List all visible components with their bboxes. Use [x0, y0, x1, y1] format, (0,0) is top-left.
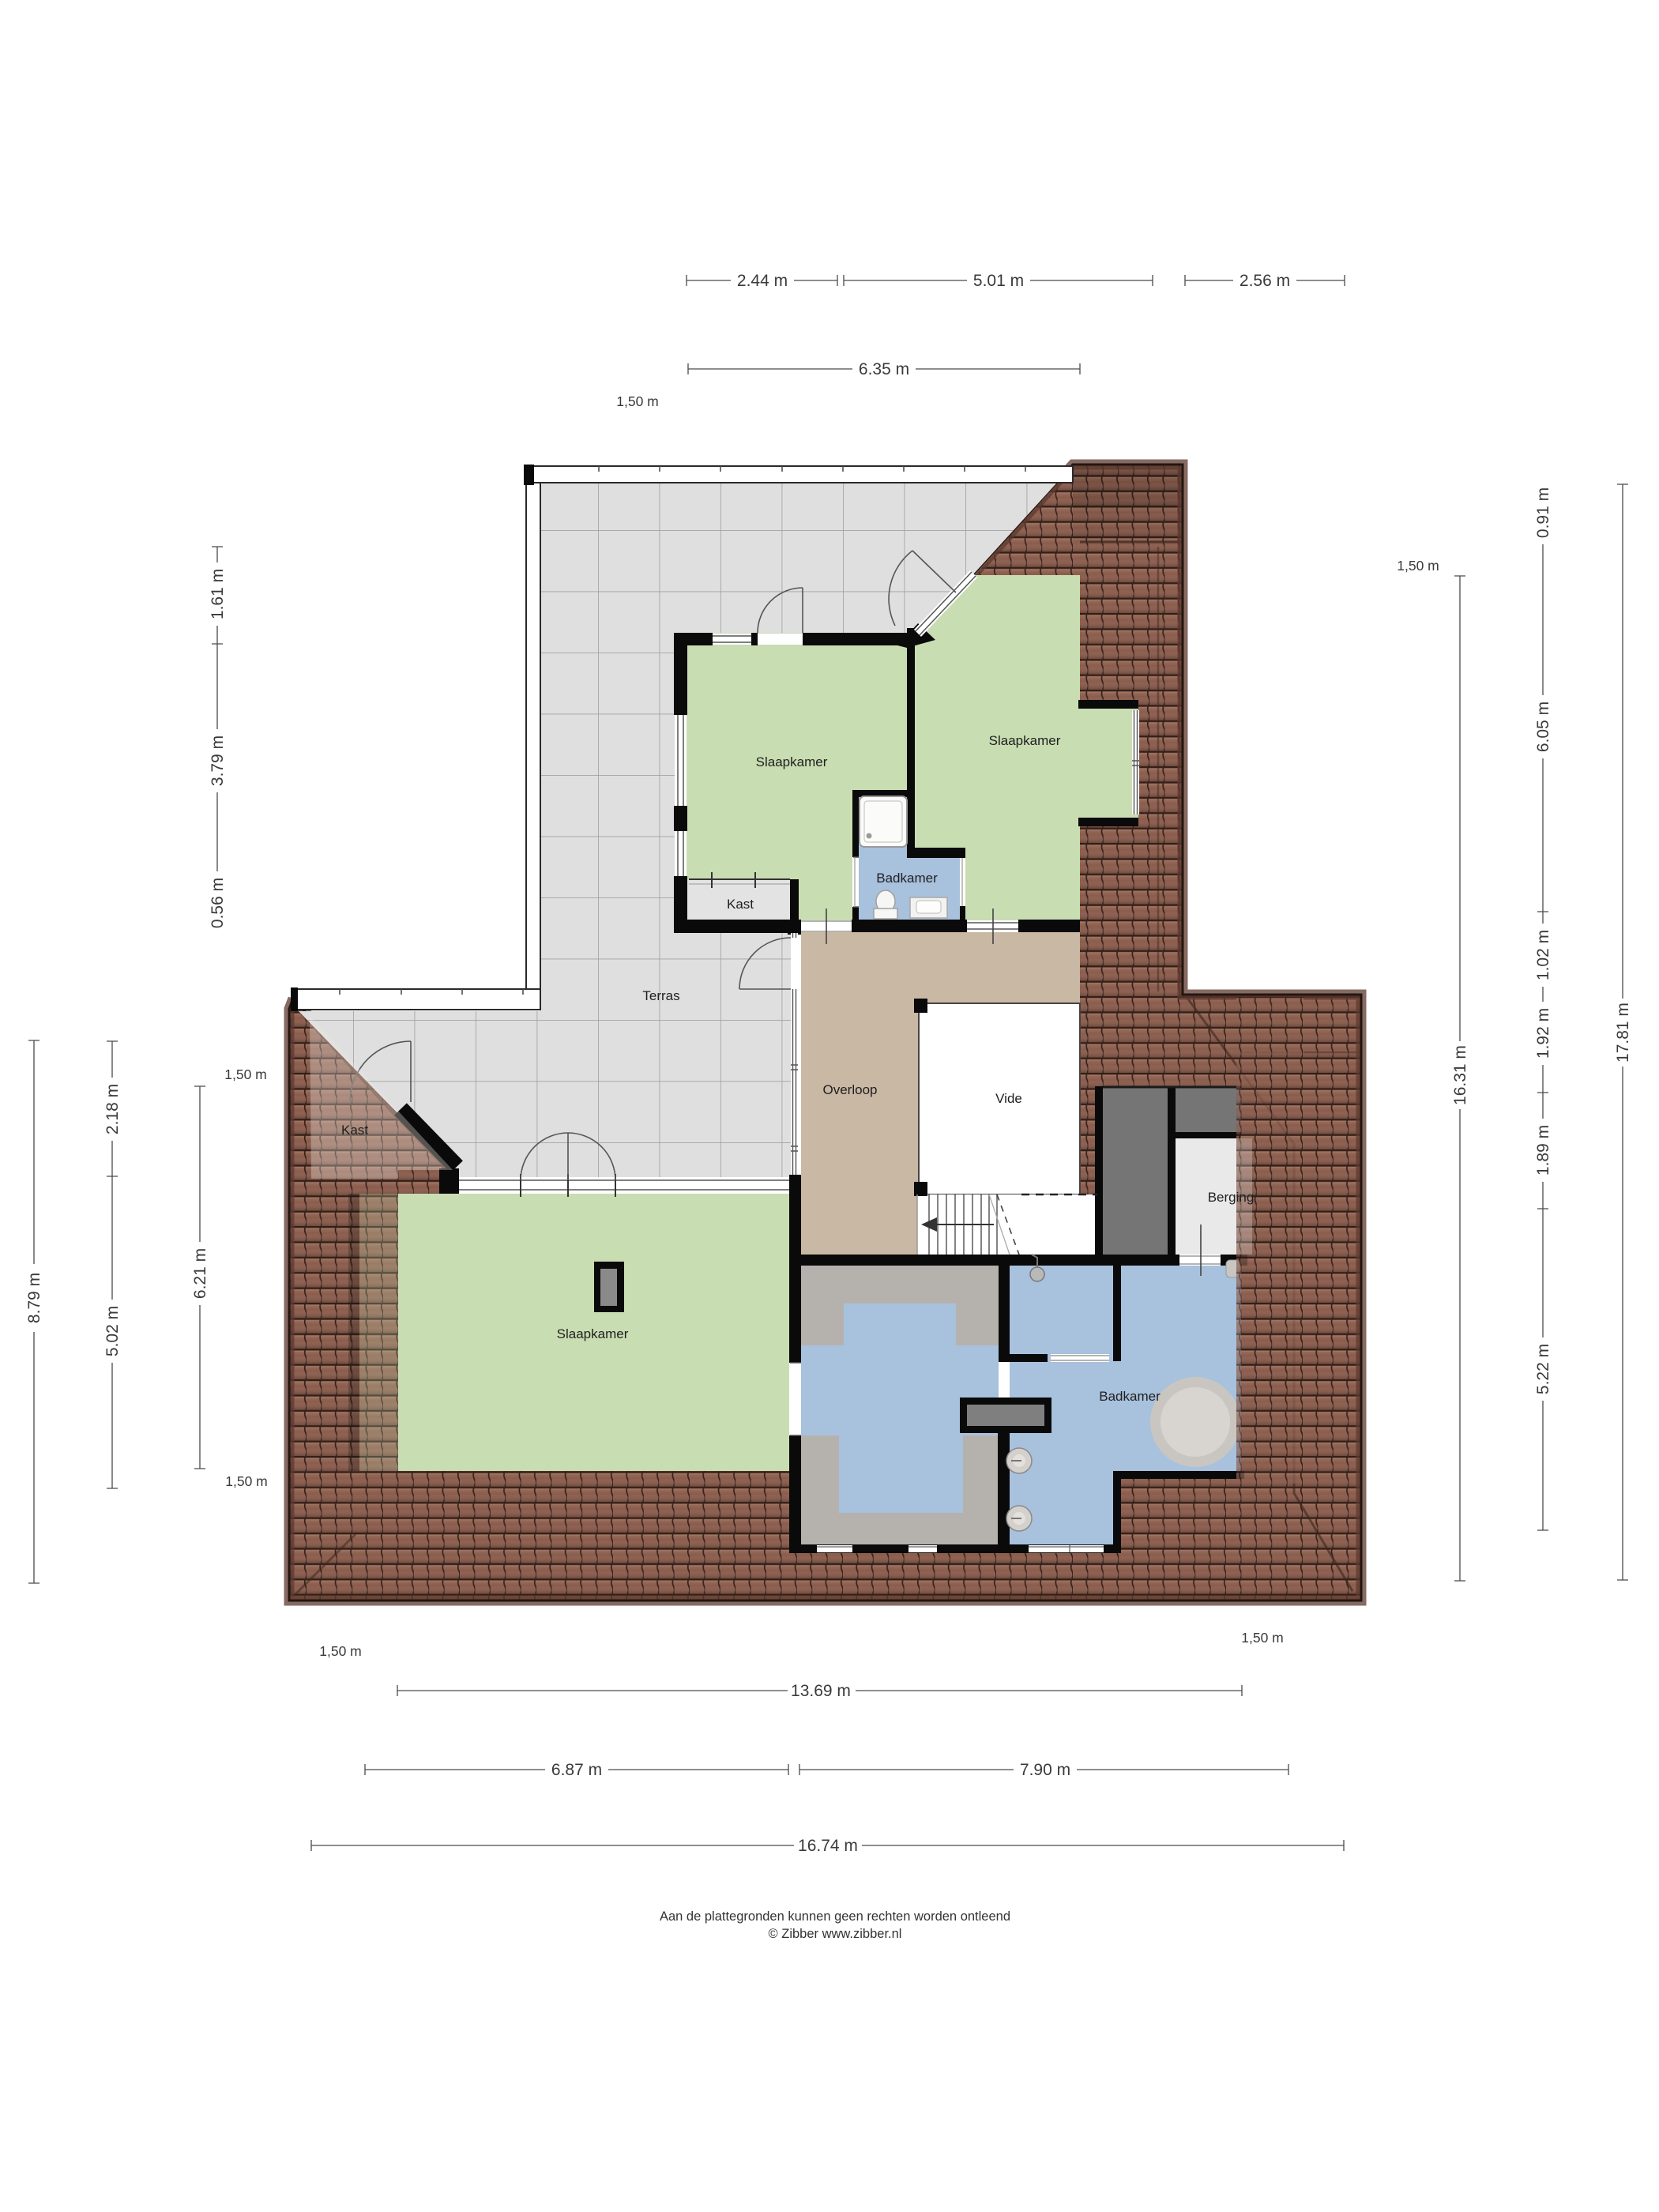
svg-text:1,50 m: 1,50 m	[1241, 1630, 1284, 1646]
svg-text:Badkamer: Badkamer	[876, 871, 938, 886]
svg-text:1.92 m: 1.92 m	[1534, 1008, 1552, 1059]
svg-text:Badkamer: Badkamer	[1099, 1389, 1161, 1404]
svg-text:7.90 m: 7.90 m	[1020, 1761, 1070, 1779]
svg-text:Terras: Terras	[642, 988, 679, 1003]
svg-text:5.22 m: 5.22 m	[1534, 1344, 1552, 1394]
svg-text:16.74 m: 16.74 m	[798, 1837, 858, 1855]
svg-text:16.31 m: 16.31 m	[1451, 1045, 1469, 1105]
svg-text:Aan de plattegronden kunnen ge: Aan de plattegronden kunnen geen rechten…	[660, 1909, 1010, 1924]
svg-text:1.02 m: 1.02 m	[1534, 930, 1552, 980]
svg-text:2.56 m: 2.56 m	[1240, 272, 1290, 290]
svg-text:1,50 m: 1,50 m	[616, 393, 659, 409]
svg-text:Slaapkamer: Slaapkamer	[557, 1326, 629, 1341]
svg-text:1,50 m: 1,50 m	[319, 1643, 362, 1659]
svg-text:0.56 m: 0.56 m	[209, 878, 227, 928]
svg-text:2.44 m: 2.44 m	[737, 272, 788, 290]
svg-text:5.01 m: 5.01 m	[973, 272, 1024, 290]
svg-text:Overloop: Overloop	[823, 1082, 878, 1097]
svg-text:Kast: Kast	[341, 1123, 368, 1138]
svg-text:6.21 m: 6.21 m	[191, 1248, 209, 1299]
svg-text:5.02 m: 5.02 m	[103, 1306, 122, 1356]
svg-text:Kast: Kast	[727, 897, 754, 912]
svg-text:Slaapkamer: Slaapkamer	[756, 754, 828, 769]
svg-text:2.18 m: 2.18 m	[103, 1084, 122, 1134]
svg-text:6.87 m: 6.87 m	[551, 1761, 602, 1779]
svg-text:© Zibber www.zibber.nl: © Zibber www.zibber.nl	[769, 1927, 902, 1941]
svg-text:1,50 m: 1,50 m	[225, 1473, 268, 1489]
svg-text:6.05 m: 6.05 m	[1534, 702, 1552, 752]
svg-text:1,50 m: 1,50 m	[224, 1066, 267, 1082]
svg-text:8.79 m: 8.79 m	[25, 1273, 43, 1323]
svg-text:6.35 m: 6.35 m	[859, 360, 909, 378]
svg-text:1.61 m: 1.61 m	[209, 569, 227, 619]
svg-text:17.81 m: 17.81 m	[1614, 1003, 1632, 1063]
svg-text:3.79 m: 3.79 m	[209, 735, 227, 786]
svg-text:Slaapkamer: Slaapkamer	[989, 733, 1061, 748]
svg-text:Berging: Berging	[1208, 1190, 1255, 1205]
svg-text:1.89 m: 1.89 m	[1534, 1125, 1552, 1176]
svg-text:Vide: Vide	[995, 1091, 1022, 1106]
svg-text:13.69 m: 13.69 m	[791, 1682, 851, 1700]
svg-text:0.91 m: 0.91 m	[1534, 487, 1552, 538]
svg-text:1,50 m: 1,50 m	[1397, 558, 1439, 574]
